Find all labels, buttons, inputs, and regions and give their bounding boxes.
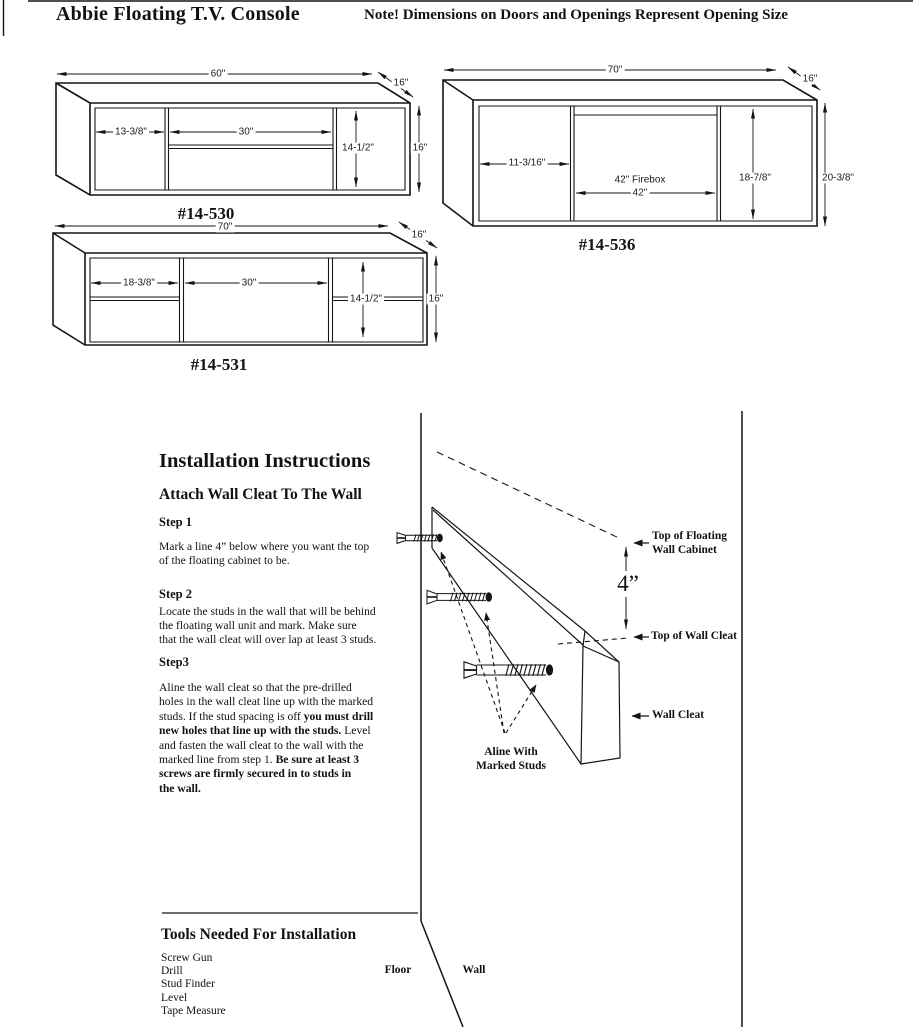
screw-icon (427, 590, 492, 604)
header-note: Note! Dimensions on Doors and Openings R… (364, 7, 788, 24)
wall-label: Wall (462, 964, 485, 978)
dashed-guides (437, 452, 628, 733)
screw-icon (464, 662, 554, 678)
tool-item: Tape Measure (161, 1005, 226, 1018)
dim-530-center-opening: 30" (237, 127, 256, 138)
dim-536-depth: 16" (801, 74, 820, 85)
step2-body: Locate the studs in the wall that will b… (159, 605, 385, 647)
label-arrows (632, 543, 649, 716)
dim-531-height: 16" (427, 294, 446, 305)
screw-icon (397, 533, 443, 544)
line-art (0, 0, 913, 1027)
aline-with-studs-label: Aline With Marked Studs (476, 746, 546, 773)
tools-title: Tools Needed For Installation (161, 926, 356, 944)
top-of-cabinet-label: Top of Floating Wall Cabinet (652, 530, 727, 557)
cabinet-536-drawing (443, 67, 825, 226)
dim-530-depth: 16" (392, 78, 411, 89)
offset-dimension-text: 4” (616, 571, 640, 597)
step3-heading: Step3 (159, 655, 189, 670)
wall-cleat-shape (432, 507, 620, 764)
dim-531-width: 70" (216, 222, 235, 233)
model-label-531: #14-531 (191, 355, 248, 375)
instructions-title: Installation Instructions (159, 450, 370, 473)
dim-531-center-opening: 30" (240, 278, 259, 289)
step1-body: Mark a line 4” below where you want the … (159, 540, 385, 568)
dim-531-left-opening: 18-3/8" (121, 278, 157, 289)
dim-536-width: 70" (606, 65, 625, 76)
dim-530-opening-height: 14-1/2" (340, 143, 376, 154)
tools-list: Screw Gun Drill Stud Finder Level Tape M… (161, 952, 226, 1018)
tool-item: Level (161, 992, 226, 1005)
wall-cleat-label: Wall Cleat (652, 709, 704, 723)
dim-536-opening-height: 18-7/8" (737, 173, 773, 184)
step3-body: Aline the wall cleat so that the pre-dri… (159, 681, 385, 796)
dim-531-opening-height: 14-1/2" (348, 294, 384, 305)
dim-536-firebox-label: 42" Firebox (613, 175, 668, 186)
step2-heading: Step 2 (159, 587, 192, 602)
tool-item: Stud Finder (161, 978, 226, 991)
instructions-subtitle: Attach Wall Cleat To The Wall (159, 486, 362, 504)
tool-item: Drill (161, 965, 226, 978)
dim-530-left-opening: 13-3/8" (113, 127, 149, 138)
step1-heading: Step 1 (159, 515, 192, 530)
dim-536-left-opening: 11-3/16" (507, 158, 548, 169)
tool-item: Screw Gun (161, 952, 226, 965)
top-of-wall-cleat-label: Top of Wall Cleat (651, 630, 737, 644)
model-label-536: #14-536 (579, 235, 636, 255)
dim-531-depth: 16" (410, 230, 429, 241)
page-title: Abbie Floating T.V. Console (56, 3, 300, 26)
dim-530-height: 16" (411, 143, 430, 154)
floor-label: Floor (385, 964, 412, 978)
document-page: Abbie Floating T.V. Console Note! Dimens… (0, 0, 913, 1027)
dim-536-firebox-width: 42" (631, 188, 650, 199)
dim-530-width: 60" (209, 69, 228, 80)
dim-536-height: 20-3/8" (820, 173, 856, 184)
